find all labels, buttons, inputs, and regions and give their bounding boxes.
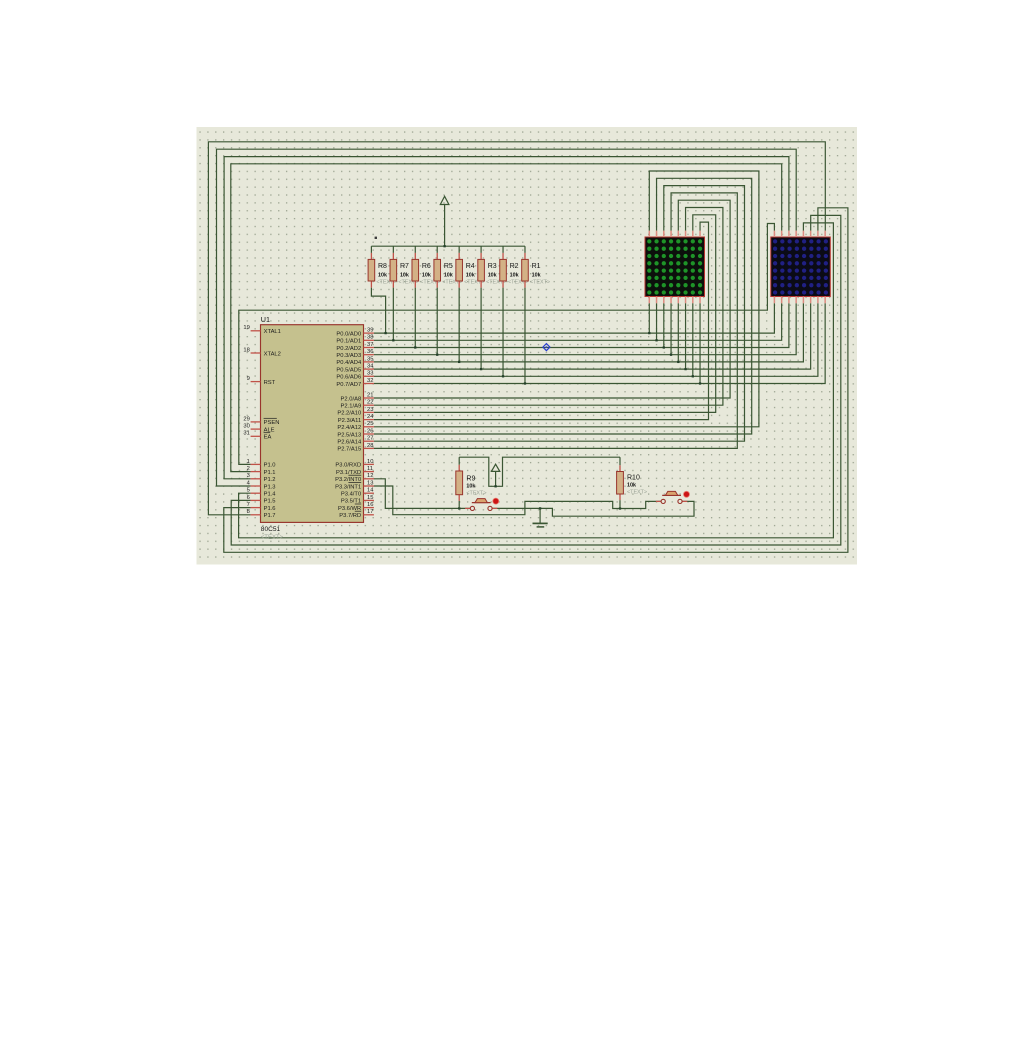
svg-text:33: 33 (367, 371, 373, 377)
svg-text:7: 7 (247, 502, 250, 508)
svg-text:38: 38 (367, 335, 373, 341)
svg-text:13: 13 (367, 480, 373, 486)
svg-text:23: 23 (367, 407, 373, 413)
svg-text:17: 17 (367, 509, 373, 515)
svg-text:12: 12 (367, 473, 373, 479)
svg-text:10k: 10k (488, 272, 497, 278)
svg-text:R10: R10 (627, 474, 640, 481)
svg-text:P0.0/AD0: P0.0/AD0 (336, 331, 361, 337)
svg-text:35: 35 (367, 356, 373, 362)
svg-text:16: 16 (367, 502, 373, 508)
svg-text:6: 6 (247, 495, 250, 501)
svg-text:18: 18 (243, 347, 249, 353)
svg-text:P0.7/AD7: P0.7/AD7 (336, 382, 361, 388)
svg-text:P1.6: P1.6 (264, 506, 276, 512)
svg-text:P3.4/T0: P3.4/T0 (341, 492, 361, 498)
svg-text:80C51: 80C51 (261, 526, 281, 533)
svg-text:P1.1: P1.1 (264, 470, 276, 476)
svg-text:8: 8 (247, 509, 250, 515)
svg-text:P2.4/A12: P2.4/A12 (337, 425, 361, 431)
svg-text:P0.3/AD3: P0.3/AD3 (336, 353, 361, 359)
svg-text:R9: R9 (466, 475, 475, 482)
svg-text:R6: R6 (422, 263, 431, 270)
svg-text:19: 19 (243, 325, 249, 331)
svg-text:P1.4: P1.4 (264, 492, 277, 498)
svg-text:<TEXT>: <TEXT> (627, 490, 647, 496)
svg-text:XTAL1: XTAL1 (264, 329, 281, 335)
svg-text:10k: 10k (532, 272, 541, 278)
svg-text:37: 37 (367, 342, 373, 348)
svg-text:24: 24 (367, 414, 374, 420)
svg-text:P0.1/AD1: P0.1/AD1 (336, 339, 361, 345)
svg-text:P2.6/A14: P2.6/A14 (337, 440, 362, 446)
svg-text:3: 3 (247, 473, 250, 479)
svg-text:P1.0: P1.0 (264, 463, 276, 469)
svg-text:10k: 10k (466, 484, 475, 490)
svg-text:5: 5 (247, 488, 250, 494)
svg-text:P2.5/A13: P2.5/A13 (337, 432, 361, 438)
svg-text:34: 34 (367, 364, 374, 370)
svg-text:P0.6/AD6: P0.6/AD6 (336, 375, 361, 381)
svg-text:P1.5: P1.5 (264, 499, 276, 505)
svg-text:15: 15 (367, 495, 373, 501)
svg-text:10k: 10k (444, 272, 453, 278)
svg-text:P3.0/RXD: P3.0/RXD (335, 463, 361, 469)
svg-text:P1.3: P1.3 (264, 484, 276, 490)
svg-text:9: 9 (247, 376, 250, 382)
svg-text:10k: 10k (378, 272, 387, 278)
svg-text:32: 32 (367, 378, 373, 384)
svg-text:10k: 10k (627, 483, 636, 489)
svg-text:31: 31 (243, 431, 249, 437)
svg-text:<TEXT>: <TEXT> (530, 280, 550, 286)
svg-text:R5: R5 (444, 263, 453, 270)
svg-text:P1.7: P1.7 (264, 513, 276, 519)
svg-text:XTAL2: XTAL2 (264, 351, 281, 357)
svg-text:10: 10 (367, 459, 373, 465)
svg-text:10k: 10k (510, 272, 519, 278)
svg-text:29: 29 (243, 416, 249, 422)
svg-text:11: 11 (367, 466, 373, 472)
svg-text:P3.3/INT1: P3.3/INT1 (335, 484, 361, 490)
svg-text:P2.7/A15: P2.7/A15 (337, 447, 361, 453)
svg-text:P0.4/AD4: P0.4/AD4 (336, 360, 362, 366)
svg-text:27: 27 (367, 436, 373, 442)
svg-text:39: 39 (367, 328, 373, 334)
svg-text:14: 14 (367, 488, 374, 494)
svg-text:RST: RST (264, 380, 276, 386)
svg-text:P2.2/A10: P2.2/A10 (337, 411, 361, 417)
svg-text:2: 2 (247, 466, 250, 472)
svg-text:1: 1 (247, 459, 250, 465)
svg-text:28: 28 (367, 443, 373, 449)
svg-text:30: 30 (243, 424, 249, 430)
svg-text:R4: R4 (466, 263, 475, 270)
svg-text:26: 26 (367, 428, 373, 434)
svg-text:P2.3/A11: P2.3/A11 (338, 418, 361, 424)
svg-text:10k: 10k (422, 272, 431, 278)
svg-text:<TEXT>: <TEXT> (261, 535, 284, 541)
svg-text:P2.0/A8: P2.0/A8 (341, 396, 362, 402)
svg-text:EA: EA (264, 435, 272, 441)
svg-text:P3.7/RD: P3.7/RD (339, 513, 361, 519)
svg-text:R2: R2 (510, 263, 519, 270)
svg-text:R8: R8 (378, 263, 387, 270)
svg-text:10k: 10k (466, 272, 475, 278)
svg-text:PSEN: PSEN (264, 420, 280, 426)
svg-text:R1: R1 (532, 263, 541, 270)
svg-text:R7: R7 (400, 263, 409, 270)
svg-text:U1: U1 (261, 315, 270, 324)
svg-text:P0.2/AD2: P0.2/AD2 (336, 346, 361, 352)
svg-text:P1.2: P1.2 (264, 477, 276, 483)
svg-text:22: 22 (367, 400, 373, 406)
svg-text:P2.1/A9: P2.1/A9 (341, 404, 362, 410)
svg-text:21: 21 (367, 392, 373, 398)
svg-text:P0.5/AD5: P0.5/AD5 (336, 367, 361, 373)
svg-text:36: 36 (367, 349, 373, 355)
svg-text:10k: 10k (400, 272, 409, 278)
svg-text:<TEXT>: <TEXT> (466, 491, 486, 497)
svg-text:25: 25 (367, 421, 373, 427)
svg-text:R3: R3 (488, 263, 497, 270)
